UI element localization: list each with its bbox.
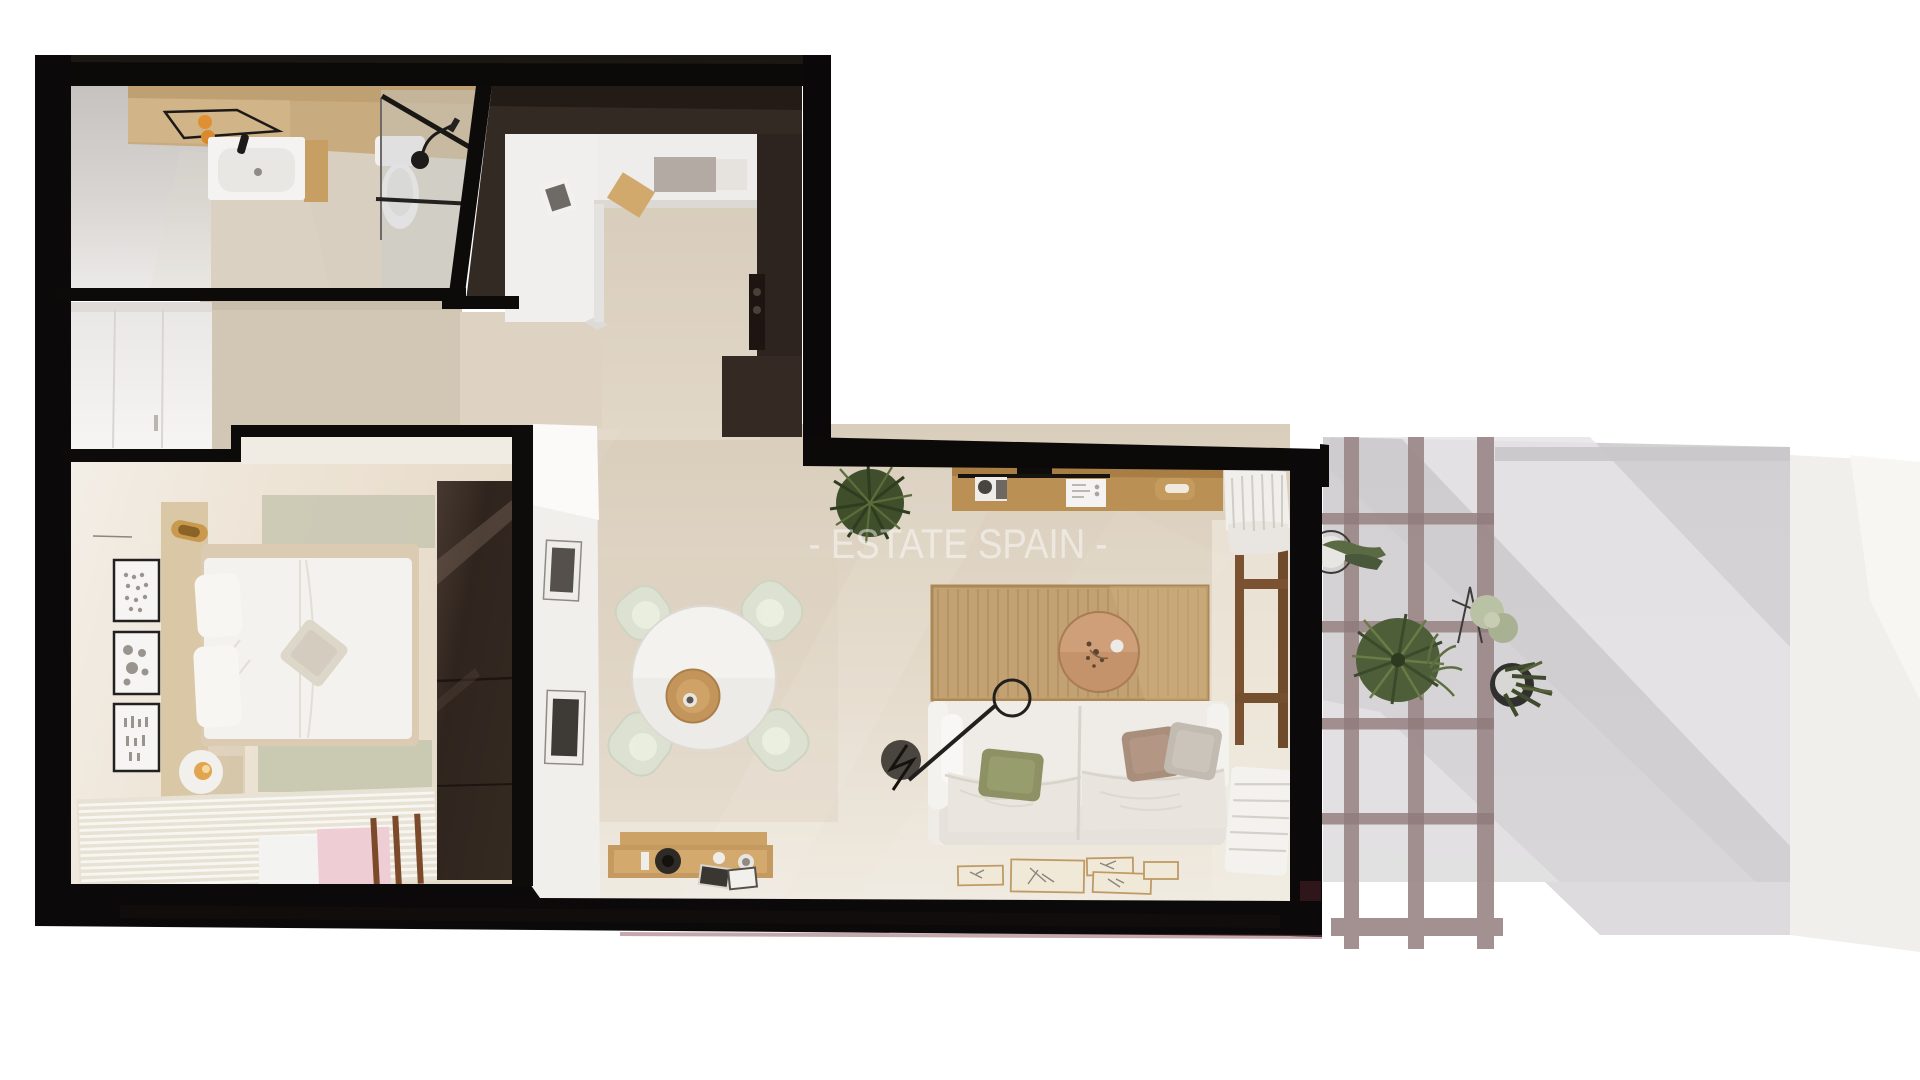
svg-text:- ESTATE SPAIN -: - ESTATE SPAIN - — [809, 520, 1108, 567]
